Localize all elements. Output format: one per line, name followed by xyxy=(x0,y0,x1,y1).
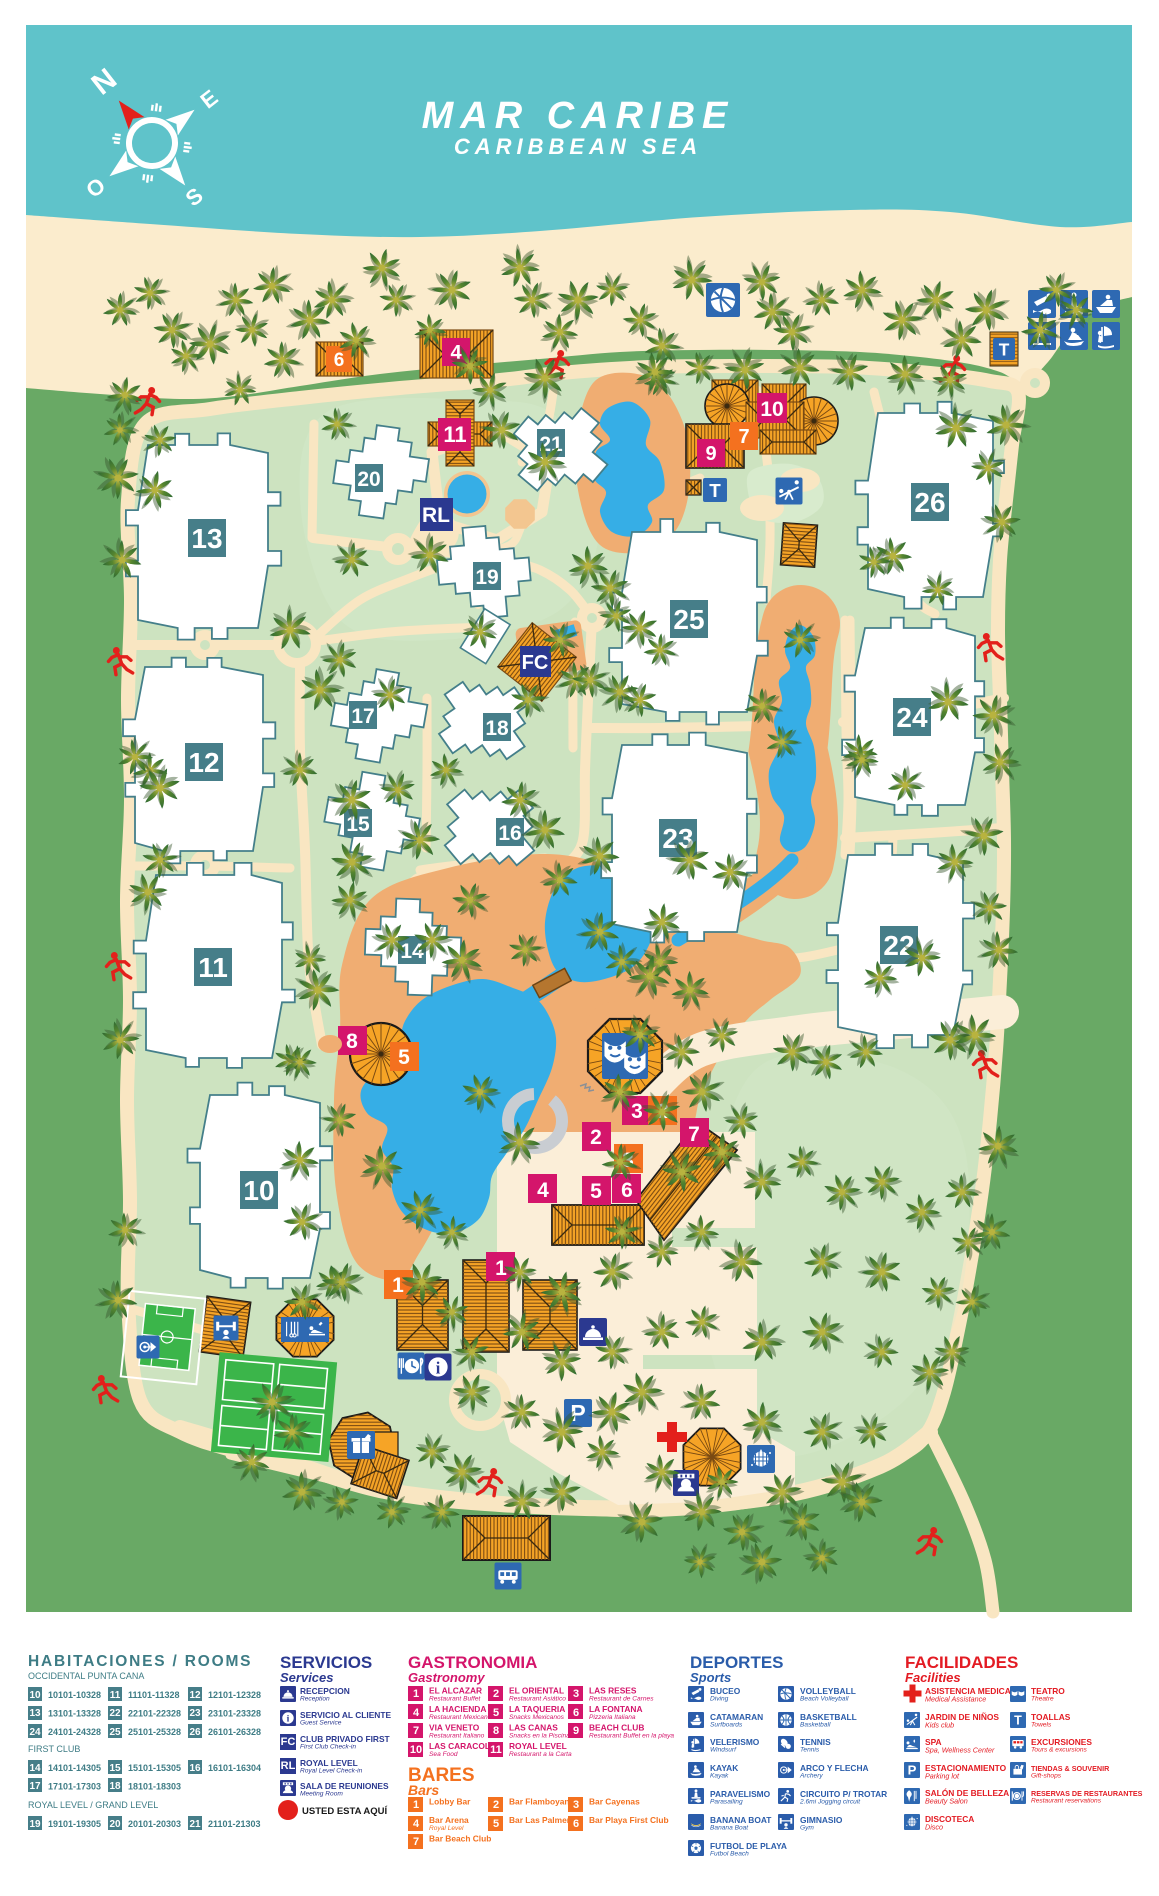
svg-text:Kids club: Kids club xyxy=(925,1721,954,1730)
svg-text:Windsurf: Windsurf xyxy=(710,1747,737,1754)
svg-text:GIMNASIO: GIMNASIO xyxy=(800,1815,843,1825)
svg-text:KAYAK: KAYAK xyxy=(710,1763,738,1773)
svg-text:9: 9 xyxy=(705,443,716,465)
svg-text:7: 7 xyxy=(413,1836,419,1848)
svg-text:22: 22 xyxy=(109,1708,121,1719)
svg-text:RL: RL xyxy=(281,1760,296,1772)
svg-text:5: 5 xyxy=(493,1818,499,1830)
svg-text:Reception: Reception xyxy=(300,1696,330,1703)
svg-text:2: 2 xyxy=(493,1799,499,1811)
svg-text:Restaurant Mexicano: Restaurant Mexicano xyxy=(429,1714,492,1721)
svg-text:Restaurant Italiano: Restaurant Italiano xyxy=(429,1733,485,1740)
svg-text:23: 23 xyxy=(189,1708,201,1719)
svg-text:MAR CARIBE: MAR CARIBE xyxy=(422,95,735,137)
svg-text:Facilities: Facilities xyxy=(905,1670,961,1685)
svg-text:P: P xyxy=(908,1763,917,1778)
svg-text:Towels: Towels xyxy=(1031,1722,1052,1729)
svg-text:LAS RESES: LAS RESES xyxy=(589,1686,637,1696)
svg-text:12101-12328: 12101-12328 xyxy=(208,1690,261,1700)
svg-text:Disco: Disco xyxy=(925,1823,943,1832)
svg-text:Tennis: Tennis xyxy=(800,1747,820,1754)
svg-text:SERVICIO AL CLIENTE: SERVICIO AL CLIENTE xyxy=(300,1710,391,1720)
svg-text:TEATRO: TEATRO xyxy=(1031,1686,1065,1696)
svg-text:VELERISMO: VELERISMO xyxy=(710,1737,760,1747)
svg-text:BUCEO: BUCEO xyxy=(710,1686,741,1696)
svg-text:26: 26 xyxy=(914,487,945,518)
svg-text:8: 8 xyxy=(493,1725,499,1737)
svg-text:PARAVELISMO: PARAVELISMO xyxy=(710,1789,771,1799)
svg-text:5: 5 xyxy=(398,1046,410,1069)
svg-text:T: T xyxy=(1014,1714,1022,1728)
svg-text:TENNIS: TENNIS xyxy=(800,1737,831,1747)
svg-text:Diving: Diving xyxy=(710,1696,729,1703)
svg-text:VOLLEYBALL: VOLLEYBALL xyxy=(800,1686,856,1696)
svg-text:22101-22328: 22101-22328 xyxy=(128,1709,181,1719)
svg-text:ROYAL LEVEL: ROYAL LEVEL xyxy=(509,1741,567,1751)
svg-text:16: 16 xyxy=(189,1763,201,1774)
svg-text:Gift-shops: Gift-shops xyxy=(1031,1773,1062,1780)
svg-text:Banana Boat: Banana Boat xyxy=(710,1825,749,1832)
svg-text:T: T xyxy=(709,480,721,501)
svg-text:Beach Volleyball: Beach Volleyball xyxy=(800,1696,849,1703)
svg-text:Archery: Archery xyxy=(799,1773,823,1780)
svg-text:Gastronomy: Gastronomy xyxy=(408,1670,485,1685)
svg-text:5: 5 xyxy=(493,1707,499,1719)
svg-text:17: 17 xyxy=(351,705,374,728)
svg-text:Restaurant Asiático: Restaurant Asiático xyxy=(509,1696,566,1703)
svg-text:BANANA BOAT: BANANA BOAT xyxy=(710,1815,772,1825)
svg-text:18: 18 xyxy=(485,717,509,740)
svg-text:1: 1 xyxy=(392,1274,404,1297)
svg-text:BEACH CLUB: BEACH CLUB xyxy=(589,1723,644,1733)
svg-text:BASKETBALL: BASKETBALL xyxy=(800,1712,857,1722)
svg-text:Restaurant Buffet: Restaurant Buffet xyxy=(429,1696,481,1703)
svg-text:11: 11 xyxy=(110,1690,121,1701)
svg-text:21: 21 xyxy=(189,1819,201,1830)
svg-text:17101-17303: 17101-17303 xyxy=(48,1782,101,1792)
svg-text:17: 17 xyxy=(29,1781,41,1792)
svg-text:3: 3 xyxy=(573,1799,579,1811)
svg-text:HABITACIONES / ROOMS: HABITACIONES / ROOMS xyxy=(28,1653,252,1670)
svg-text:3: 3 xyxy=(631,1100,643,1123)
svg-text:6: 6 xyxy=(334,350,345,371)
svg-text:Pizzeria Italiana: Pizzeria Italiana xyxy=(589,1714,636,1721)
svg-text:Surfboards: Surfboards xyxy=(710,1722,743,1729)
svg-text:Guest Service: Guest Service xyxy=(300,1720,342,1727)
svg-text:USTED ESTA AQUÍ: USTED ESTA AQUÍ xyxy=(302,1806,388,1817)
svg-text:10101-10328: 10101-10328 xyxy=(48,1690,101,1700)
svg-text:CLUB PRIVADO FIRST: CLUB PRIVADO FIRST xyxy=(300,1734,391,1744)
svg-text:RECEPCION: RECEPCION xyxy=(300,1686,350,1696)
svg-text:LA HACIENDA: LA HACIENDA xyxy=(429,1704,486,1714)
svg-text:4: 4 xyxy=(413,1818,420,1830)
svg-text:Sports: Sports xyxy=(690,1670,731,1685)
svg-text:Tours & excursions: Tours & excursions xyxy=(1031,1747,1088,1754)
svg-text:Medical Assistance: Medical Assistance xyxy=(925,1695,986,1704)
svg-text:9: 9 xyxy=(573,1725,579,1737)
svg-text:i: i xyxy=(436,1358,441,1377)
svg-text:10: 10 xyxy=(29,1690,41,1701)
svg-text:5: 5 xyxy=(590,1180,602,1203)
svg-text:15: 15 xyxy=(346,813,370,836)
svg-text:T: T xyxy=(999,339,1010,359)
svg-text:Kayak: Kayak xyxy=(710,1773,729,1780)
svg-text:7: 7 xyxy=(738,426,749,448)
svg-text:7: 7 xyxy=(413,1725,419,1737)
svg-text:ARCO Y FLECHA: ARCO Y FLECHA xyxy=(800,1763,869,1773)
svg-text:24101-24328: 24101-24328 xyxy=(48,1727,101,1737)
svg-text:Parasailing: Parasailing xyxy=(710,1799,743,1806)
svg-text:15101-15305: 15101-15305 xyxy=(128,1763,181,1773)
svg-text:10: 10 xyxy=(760,398,783,421)
svg-text:ROYAL LEVEL: ROYAL LEVEL xyxy=(300,1758,358,1768)
svg-text:16: 16 xyxy=(498,822,521,845)
svg-text:FC: FC xyxy=(522,652,549,674)
svg-text:11: 11 xyxy=(443,422,466,447)
svg-text:18101-18303: 18101-18303 xyxy=(128,1782,181,1792)
svg-text:Bar Arena: Bar Arena xyxy=(429,1815,469,1825)
svg-text:FUTBOL DE PLAYA: FUTBOL DE PLAYA xyxy=(710,1841,787,1851)
svg-text:Gym: Gym xyxy=(800,1825,814,1832)
svg-text:Futbol Beach: Futbol Beach xyxy=(710,1851,749,1858)
svg-text:LA FONTANA: LA FONTANA xyxy=(589,1704,643,1714)
svg-text:11101-11328: 11101-11328 xyxy=(128,1690,180,1700)
svg-text:Restaurant de Carnes: Restaurant de Carnes xyxy=(589,1696,654,1703)
svg-text:18: 18 xyxy=(109,1781,121,1792)
svg-text:20: 20 xyxy=(357,468,380,491)
svg-text:6: 6 xyxy=(573,1818,579,1830)
svg-text:6: 6 xyxy=(621,1179,633,1202)
svg-text:FC: FC xyxy=(281,1736,296,1748)
svg-text:Services: Services xyxy=(280,1670,334,1685)
svg-text:20101-20303: 20101-20303 xyxy=(128,1819,181,1829)
svg-text:12: 12 xyxy=(189,1690,201,1701)
svg-text:OCCIDENTAL PUNTA CANA: OCCIDENTAL PUNTA CANA xyxy=(28,1671,144,1681)
svg-text:EL ALCAZAR: EL ALCAZAR xyxy=(429,1686,482,1696)
svg-text:Beauty Salon: Beauty Salon xyxy=(925,1797,968,1806)
svg-text:16101-16304: 16101-16304 xyxy=(208,1763,261,1773)
svg-text:LAS CANAS: LAS CANAS xyxy=(509,1723,558,1733)
svg-text:11: 11 xyxy=(198,952,228,983)
svg-text:Bar Cayenas: Bar Cayenas xyxy=(589,1797,640,1807)
svg-text:14101-14305: 14101-14305 xyxy=(48,1763,101,1773)
svg-text:4: 4 xyxy=(413,1707,420,1719)
svg-text:2.6mi Jogging circuit: 2.6mi Jogging circuit xyxy=(799,1799,861,1806)
svg-text:RL: RL xyxy=(422,504,450,527)
svg-text:25: 25 xyxy=(673,604,704,635)
svg-text:ROYAL LEVEL / GRAND LEVEL: ROYAL LEVEL / GRAND LEVEL xyxy=(28,1800,158,1810)
svg-text:Bar Playa First Club: Bar Playa First Club xyxy=(589,1815,669,1825)
svg-text:Spa, Wellness Center: Spa, Wellness Center xyxy=(925,1746,995,1755)
svg-text:19: 19 xyxy=(29,1819,41,1830)
svg-text:i: i xyxy=(287,1714,290,1725)
svg-text:3: 3 xyxy=(573,1688,579,1700)
svg-text:EXCURSIONES: EXCURSIONES xyxy=(1031,1737,1092,1747)
svg-text:Bar Beach Club: Bar Beach Club xyxy=(429,1834,491,1844)
svg-text:Lobby Bar: Lobby Bar xyxy=(429,1797,471,1807)
svg-text:TOALLAS: TOALLAS xyxy=(1031,1712,1071,1722)
svg-text:25101-25328: 25101-25328 xyxy=(128,1727,181,1737)
svg-text:Royal Level Check-in: Royal Level Check-in xyxy=(300,1768,363,1775)
svg-text:CARIBBEAN SEA: CARIBBEAN SEA xyxy=(454,134,702,159)
svg-text:SALA DE REUNIONES: SALA DE REUNIONES xyxy=(300,1781,389,1791)
svg-text:14: 14 xyxy=(29,1763,41,1774)
svg-text:26101-26328: 26101-26328 xyxy=(208,1727,261,1737)
svg-text:15: 15 xyxy=(109,1763,121,1774)
svg-text:10: 10 xyxy=(243,1175,274,1206)
svg-text:26: 26 xyxy=(189,1727,201,1738)
svg-text:Snacks Mexicanos: Snacks Mexicanos xyxy=(509,1714,565,1721)
svg-text:Restaurant Buffet en la playa: Restaurant Buffet en la playa xyxy=(589,1733,674,1740)
svg-text:13: 13 xyxy=(29,1708,41,1719)
svg-text:VIA VENETO: VIA VENETO xyxy=(429,1723,480,1733)
svg-text:19: 19 xyxy=(475,566,498,589)
svg-text:EL ORIENTAL: EL ORIENTAL xyxy=(509,1686,564,1696)
svg-text:4: 4 xyxy=(537,1179,549,1202)
svg-text:Basketball: Basketball xyxy=(800,1722,831,1729)
svg-text:6: 6 xyxy=(573,1707,579,1719)
svg-text:LA TAQUERIA: LA TAQUERIA xyxy=(509,1704,565,1714)
svg-text:Sea Food: Sea Food xyxy=(429,1751,458,1758)
svg-text:22: 22 xyxy=(883,930,914,961)
svg-text:23101-23328: 23101-23328 xyxy=(208,1709,261,1719)
svg-text:7: 7 xyxy=(688,1123,700,1146)
svg-text:2: 2 xyxy=(590,1126,602,1149)
svg-text:21101-21303: 21101-21303 xyxy=(208,1819,261,1829)
svg-text:Snacks en la Piscina: Snacks en la Piscina xyxy=(509,1733,570,1740)
svg-text:11: 11 xyxy=(490,1744,502,1756)
svg-text:CIRCUITO P/ TROTAR: CIRCUITO P/ TROTAR xyxy=(800,1789,887,1799)
svg-text:24: 24 xyxy=(896,702,928,733)
svg-text:Theatre: Theatre xyxy=(1031,1696,1054,1703)
svg-text:13101-13328: 13101-13328 xyxy=(48,1709,101,1719)
svg-text:Restaurant reservations: Restaurant reservations xyxy=(1031,1798,1102,1805)
svg-text:13: 13 xyxy=(191,523,222,554)
svg-text:10: 10 xyxy=(410,1744,422,1756)
svg-text:25: 25 xyxy=(109,1727,121,1738)
svg-text:1: 1 xyxy=(413,1688,419,1700)
svg-text:1: 1 xyxy=(495,1257,507,1280)
svg-text:Royal Level: Royal Level xyxy=(429,1825,464,1832)
svg-text:12: 12 xyxy=(188,747,219,778)
svg-text:Parking lot: Parking lot xyxy=(925,1772,960,1781)
svg-text:Meeting Room: Meeting Room xyxy=(300,1791,343,1798)
svg-text:CATAMARAN: CATAMARAN xyxy=(710,1712,763,1722)
svg-text:2: 2 xyxy=(493,1688,499,1700)
svg-text:FIRST CLUB: FIRST CLUB xyxy=(28,1744,80,1754)
svg-text:20: 20 xyxy=(109,1819,121,1830)
svg-text:First Club Check-in: First Club Check-in xyxy=(300,1744,356,1751)
svg-text:1: 1 xyxy=(413,1799,419,1811)
svg-text:8: 8 xyxy=(346,1030,358,1053)
svg-text:Bar Flamboyan: Bar Flamboyan xyxy=(509,1797,570,1807)
svg-text:Restaurant a la Carta: Restaurant a la Carta xyxy=(509,1751,572,1758)
svg-text:19101-19305: 19101-19305 xyxy=(48,1819,101,1829)
svg-text:24: 24 xyxy=(29,1727,41,1738)
